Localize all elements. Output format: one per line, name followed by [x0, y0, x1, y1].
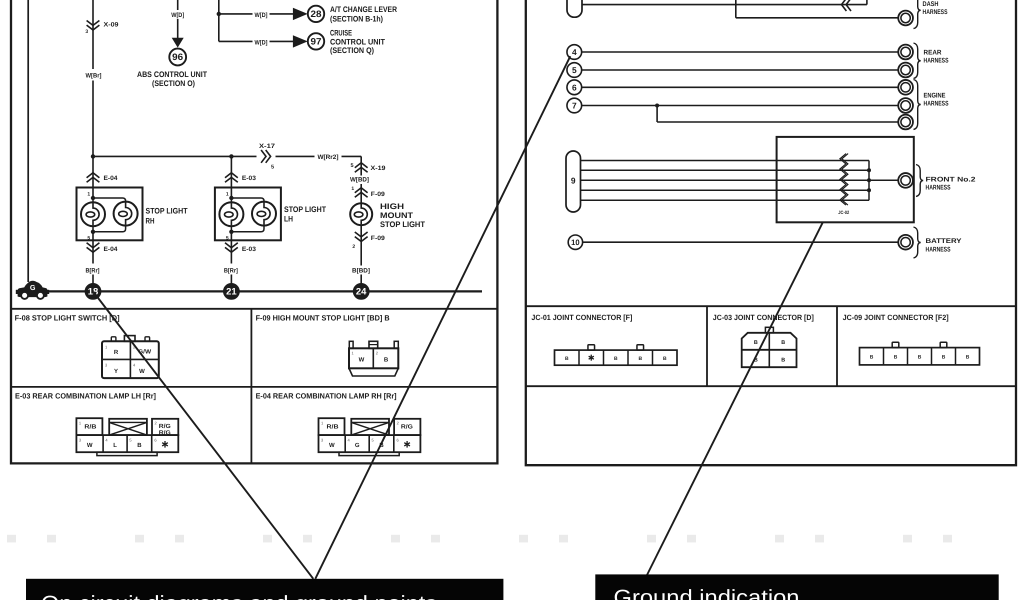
- svg-text:R/G: R/G: [401, 423, 413, 430]
- svg-text:STOP LIGHT: STOP LIGHT: [146, 207, 188, 216]
- svg-text:W[BD]: W[BD]: [350, 177, 369, 184]
- svg-text:ABS CONTROL UNIT: ABS CONTROL UNIT: [137, 70, 207, 79]
- svg-text:W[D]: W[D]: [255, 12, 268, 19]
- svg-text:A/T CHANGE LEVER: A/T CHANGE LEVER: [330, 5, 397, 14]
- svg-text:E-04: E-04: [104, 246, 119, 253]
- svg-text:B: B: [894, 354, 898, 360]
- svg-text:JC-01 JOINT CONNECTOR [F]: JC-01 JOINT CONNECTOR [F]: [531, 313, 632, 322]
- svg-text:STOP LIGHT: STOP LIGHT: [380, 220, 425, 229]
- svg-text:3: 3: [321, 438, 324, 443]
- svg-text:2: 2: [397, 421, 400, 426]
- svg-text:B: B: [663, 356, 667, 362]
- svg-text:On circuit diagrams and ground: On circuit diagrams and ground points: [41, 591, 437, 600]
- svg-text:F-08 STOP LIGHT SWITCH [D]: F-08 STOP LIGHT SWITCH [D]: [15, 313, 120, 322]
- svg-text:X-17: X-17: [259, 143, 276, 150]
- svg-text:F-09 HIGH MOUNT STOP LIGHT [B: F-09 HIGH MOUNT STOP LIGHT [BD] B: [256, 313, 390, 322]
- svg-text:1: 1: [351, 186, 354, 192]
- svg-text:HIGH: HIGH: [380, 202, 404, 211]
- svg-text:REAR: REAR: [924, 49, 942, 56]
- svg-text:5: 5: [226, 235, 229, 241]
- svg-text:E-03: E-03: [242, 175, 257, 182]
- svg-text:BATTERY: BATTERY: [926, 238, 963, 245]
- svg-text:R: R: [114, 349, 119, 356]
- svg-text:G: G: [30, 283, 36, 292]
- svg-text:HARNESS: HARNESS: [926, 246, 951, 253]
- svg-text:E-04: E-04: [104, 175, 119, 182]
- svg-text:B: B: [137, 442, 142, 449]
- svg-text:6: 6: [154, 438, 157, 443]
- svg-text:21: 21: [226, 286, 237, 297]
- svg-text:B: B: [754, 340, 758, 346]
- svg-text:CONTROL UNIT: CONTROL UNIT: [330, 37, 385, 46]
- svg-text:5: 5: [372, 438, 375, 443]
- svg-text:JC-03 JOINT CONNECTOR [D]: JC-03 JOINT CONNECTOR [D]: [713, 313, 814, 322]
- svg-text:3: 3: [85, 29, 88, 35]
- svg-text:JC-02: JC-02: [838, 210, 849, 216]
- svg-text:W[D]: W[D]: [255, 39, 268, 46]
- svg-text:1: 1: [79, 421, 82, 426]
- svg-text:X-19: X-19: [371, 165, 387, 172]
- svg-text:4: 4: [133, 363, 136, 368]
- svg-text:W: W: [139, 368, 145, 375]
- svg-text:JC-09 JOINT CONNECTOR [F2]: JC-09 JOINT CONNECTOR [F2]: [843, 313, 949, 322]
- svg-text:1: 1: [321, 421, 324, 426]
- svg-text:RH: RH: [146, 216, 155, 225]
- svg-text:R/G: R/G: [159, 423, 171, 430]
- svg-text:B: B: [781, 357, 785, 363]
- svg-text:B[Rr]: B[Rr]: [224, 267, 238, 274]
- svg-text:HARNESS: HARNESS: [923, 9, 948, 16]
- svg-text:X-09: X-09: [104, 22, 120, 29]
- svg-text:2: 2: [376, 351, 379, 356]
- svg-text:1: 1: [105, 345, 108, 350]
- svg-text:R/B: R/B: [84, 423, 97, 430]
- svg-text:HARNESS: HARNESS: [924, 101, 949, 108]
- svg-text:(SECTION Q): (SECTION Q): [330, 46, 374, 55]
- svg-text:W[D]: W[D]: [171, 12, 184, 19]
- svg-text:1: 1: [226, 192, 229, 198]
- svg-text:Ground indication: Ground indication: [614, 585, 800, 600]
- svg-text:4: 4: [572, 47, 577, 57]
- svg-text:F-09: F-09: [371, 191, 386, 198]
- svg-text:24: 24: [356, 286, 367, 297]
- svg-text:B: B: [614, 356, 618, 362]
- svg-text:G: G: [355, 442, 360, 449]
- svg-text:CRUISE: CRUISE: [330, 28, 352, 37]
- svg-text:B: B: [638, 356, 642, 362]
- svg-text:W[Br]: W[Br]: [86, 73, 102, 80]
- svg-text:B: B: [870, 354, 874, 360]
- svg-text:6: 6: [397, 438, 400, 443]
- svg-text:6: 6: [572, 82, 577, 92]
- svg-text:W: W: [329, 442, 335, 449]
- svg-text:9: 9: [571, 176, 576, 186]
- svg-text:F-09: F-09: [371, 235, 386, 242]
- svg-text:3: 3: [79, 438, 82, 443]
- svg-text:B: B: [565, 356, 569, 362]
- svg-text:5: 5: [350, 163, 353, 169]
- svg-text:1: 1: [352, 351, 355, 356]
- svg-text:(SECTION B-1h): (SECTION B-1h): [330, 15, 383, 24]
- svg-text:LH: LH: [284, 214, 293, 223]
- svg-text:B: B: [384, 357, 389, 364]
- svg-text:ENGINE: ENGINE: [924, 92, 946, 99]
- svg-text:B: B: [966, 354, 970, 360]
- svg-text:97: 97: [311, 37, 322, 47]
- svg-text:B[Rr]: B[Rr]: [86, 267, 100, 274]
- svg-text:DASH: DASH: [923, 1, 939, 8]
- svg-text:7: 7: [572, 101, 577, 111]
- svg-text:Y: Y: [114, 368, 118, 375]
- svg-text:5: 5: [271, 164, 274, 170]
- svg-text:10: 10: [571, 238, 580, 247]
- svg-text:B: B: [781, 340, 785, 346]
- svg-text:B[BD]: B[BD]: [352, 267, 370, 274]
- svg-text:L: L: [113, 442, 117, 449]
- svg-text:B: B: [918, 354, 922, 360]
- svg-text:B: B: [942, 354, 946, 360]
- svg-text:E-03: E-03: [242, 246, 257, 253]
- svg-text:5: 5: [572, 65, 577, 75]
- svg-text:W: W: [87, 442, 93, 449]
- svg-text:4: 4: [105, 438, 108, 443]
- svg-text:28: 28: [311, 9, 322, 19]
- svg-text:(SECTION O): (SECTION O): [152, 79, 195, 88]
- svg-text:96: 96: [172, 52, 183, 62]
- svg-text:5: 5: [87, 235, 90, 241]
- svg-text:STOP LIGHT: STOP LIGHT: [284, 205, 326, 214]
- svg-text:2: 2: [352, 244, 355, 250]
- svg-text:5: 5: [129, 438, 132, 443]
- svg-text:R/B: R/B: [327, 423, 340, 430]
- svg-text:HARNESS: HARNESS: [924, 58, 949, 65]
- svg-text:E-03 REAR COMBINATION LAMP LH: E-03 REAR COMBINATION LAMP LH [Rr]: [15, 391, 156, 400]
- svg-text:E-04 REAR COMBINATION LAMP RH: E-04 REAR COMBINATION LAMP RH [Rr]: [256, 391, 397, 400]
- svg-text:W: W: [359, 357, 365, 364]
- svg-text:W[Rr2]: W[Rr2]: [318, 154, 339, 161]
- svg-text:MOUNT: MOUNT: [380, 211, 413, 220]
- svg-text:2: 2: [155, 421, 158, 426]
- svg-text:4: 4: [348, 438, 351, 443]
- svg-text:FRONT No.2: FRONT No.2: [926, 176, 976, 183]
- svg-text:3: 3: [105, 363, 108, 368]
- svg-text:HARNESS: HARNESS: [926, 185, 951, 192]
- svg-text:1: 1: [87, 192, 90, 198]
